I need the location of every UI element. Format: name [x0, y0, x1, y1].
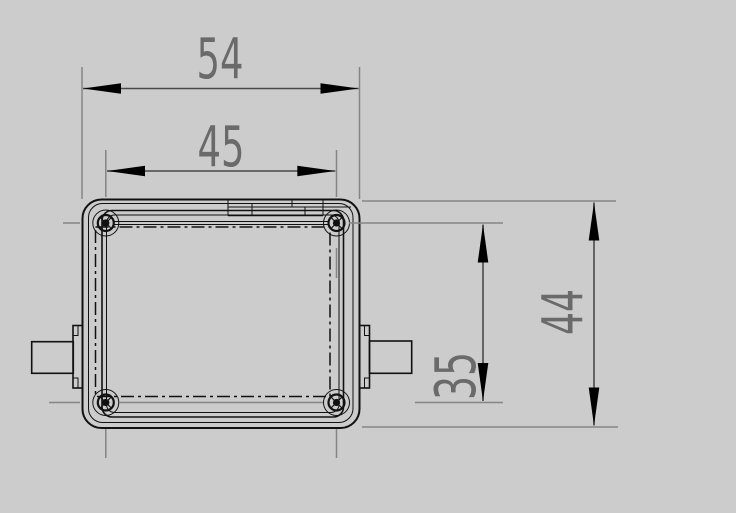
dimension-text-overall-width: 54	[197, 27, 244, 92]
drawing-background	[0, 0, 736, 513]
dimension-text-overall-height: 44	[531, 289, 596, 335]
drawing-canvas: 54 45 44 35	[0, 0, 736, 513]
dimension-text-screw-width: 45	[198, 115, 245, 180]
dimension-text-screw-height: 35	[424, 352, 489, 400]
cad-drawing: 54 45 44 35	[0, 0, 736, 513]
